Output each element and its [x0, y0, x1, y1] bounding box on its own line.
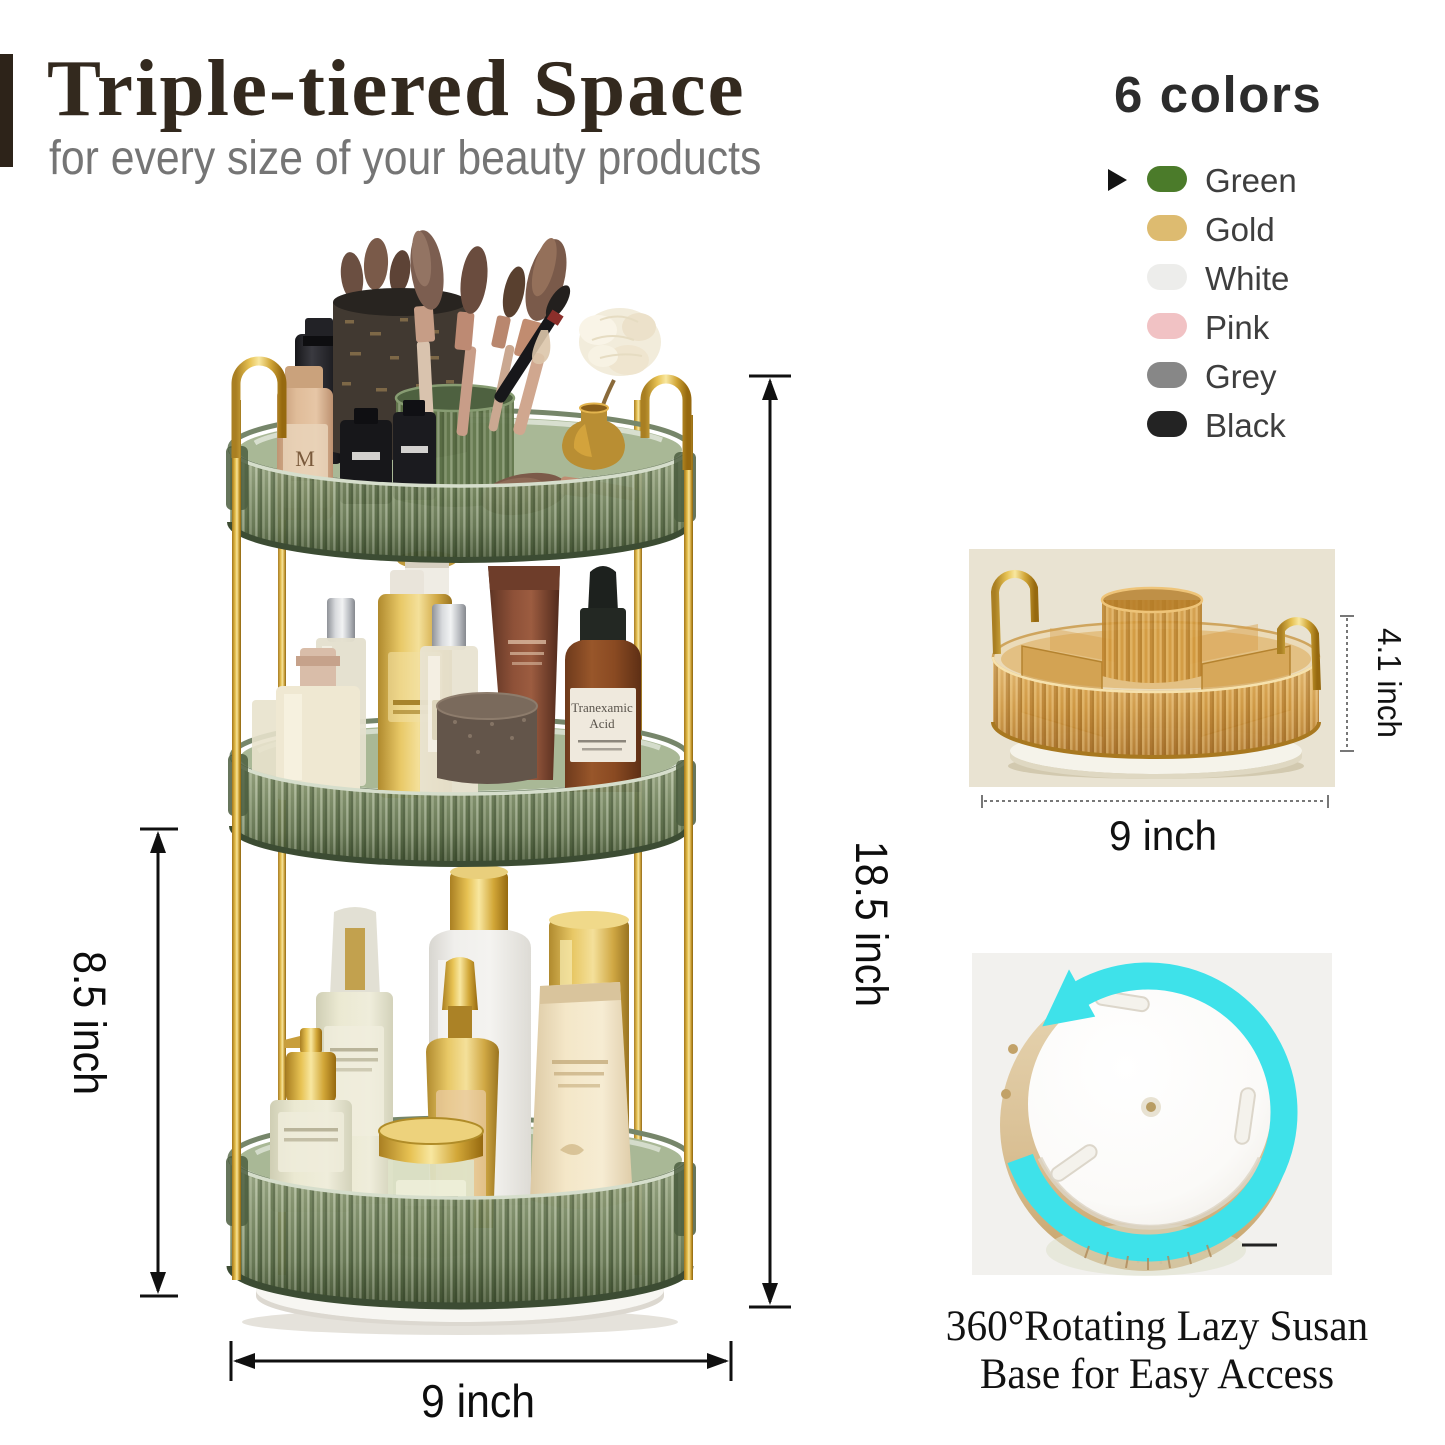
svg-text:4.1 inch: 4.1 inch: [1371, 628, 1408, 738]
svg-text:9 inch: 9 inch: [421, 1375, 535, 1427]
svg-text:Acid: Acid: [589, 716, 615, 731]
svg-text:8.5 inch: 8.5 inch: [64, 951, 115, 1095]
svg-text:Tranexamic: Tranexamic: [571, 700, 633, 715]
svg-text:18.5 inch: 18.5 inch: [846, 841, 897, 1007]
svg-text:9 inch: 9 inch: [1109, 812, 1217, 859]
svg-text:M: M: [295, 446, 315, 471]
